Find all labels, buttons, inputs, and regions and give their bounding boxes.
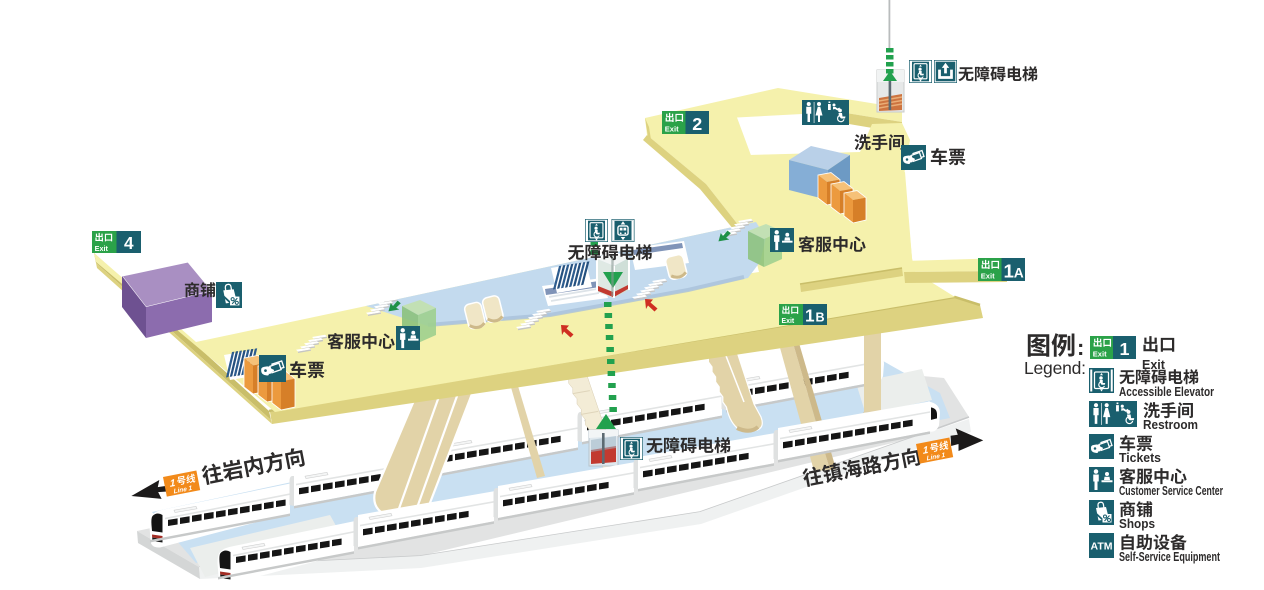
svg-text:Legend:: Legend: [1024, 358, 1086, 378]
svg-text:A: A [1014, 265, 1024, 280]
svg-text::: : [1077, 335, 1084, 360]
svg-text:Customer Service Center: Customer Service Center [1119, 484, 1223, 498]
svg-text:Exit: Exit [95, 244, 109, 253]
svg-text:4: 4 [124, 233, 134, 253]
svg-text:Accessible Elevator: Accessible Elevator [1119, 385, 1214, 399]
svg-text:Exit: Exit [665, 125, 679, 134]
svg-text:ATM: ATM [1091, 541, 1113, 553]
svg-text:Tickets: Tickets [1119, 451, 1161, 465]
svg-text:Restroom: Restroom [1143, 418, 1198, 432]
svg-text:B: B [815, 311, 824, 325]
svg-text:1: 1 [1120, 339, 1130, 359]
svg-text:1: 1 [805, 306, 815, 326]
svg-text:Shops: Shops [1119, 517, 1155, 531]
svg-text:Exit: Exit [1093, 350, 1107, 359]
svg-text:2: 2 [692, 114, 702, 134]
svg-text:1: 1 [1004, 260, 1015, 281]
svg-text:Exit: Exit [782, 318, 795, 325]
svg-text:Self-Service Equipment: Self-Service Equipment [1119, 550, 1221, 564]
svg-text:Exit: Exit [981, 272, 995, 281]
